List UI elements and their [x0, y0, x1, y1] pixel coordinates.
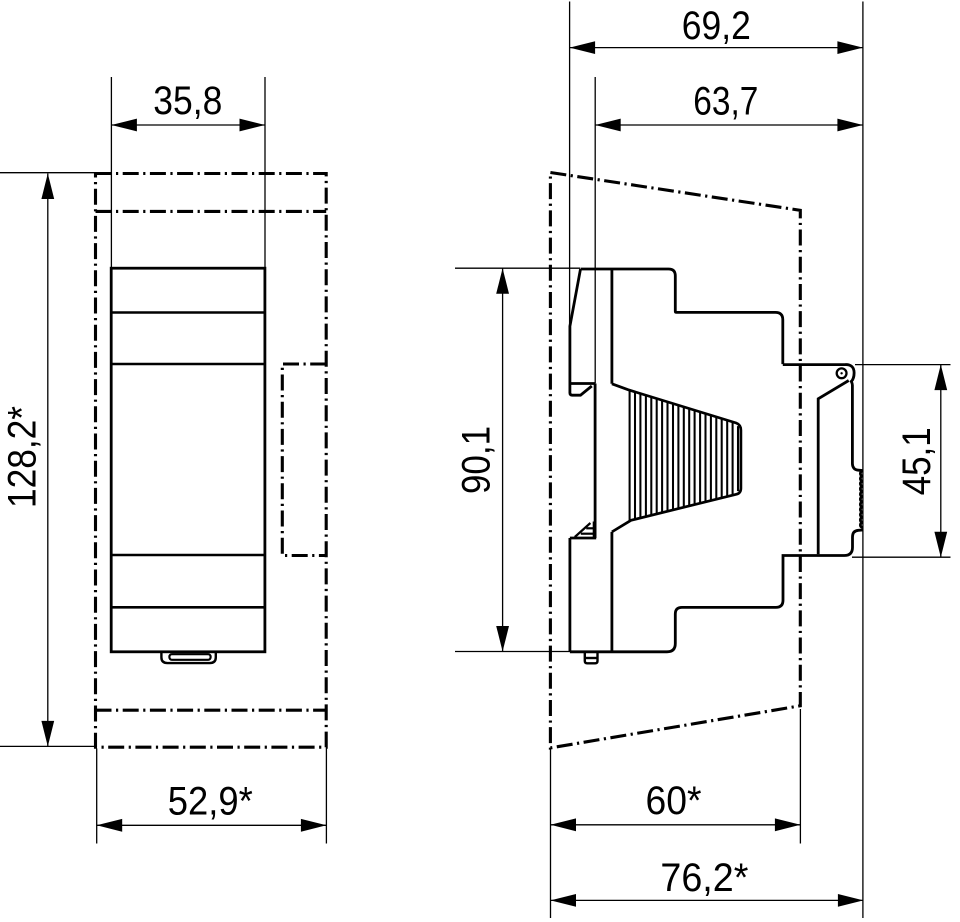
svg-text:76,2*: 76,2* [660, 856, 748, 900]
svg-text:90,1: 90,1 [455, 426, 499, 494]
svg-text:45,1: 45,1 [895, 427, 939, 495]
svg-text:60*: 60* [646, 779, 702, 823]
svg-text:35,8: 35,8 [153, 79, 222, 123]
svg-text:52,9*: 52,9* [168, 779, 253, 823]
svg-text:69,2: 69,2 [682, 4, 751, 48]
svg-text:128,2*: 128,2* [1, 406, 45, 508]
svg-text:63,7: 63,7 [693, 80, 758, 124]
